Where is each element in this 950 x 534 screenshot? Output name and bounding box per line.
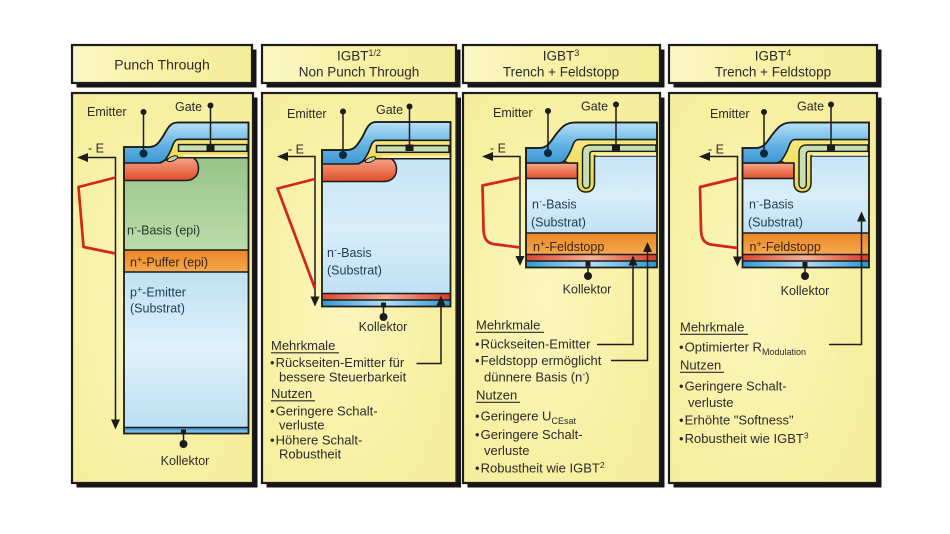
svg-text:Emitter: Emitter [87, 105, 127, 119]
svg-text:n--Basis: n--Basis [749, 197, 794, 212]
svg-text:Kollektor: Kollektor [781, 284, 830, 298]
svg-text:Non Punch Through: Non Punch Through [299, 65, 420, 80]
svg-text:- E: - E [88, 142, 104, 156]
svg-text:• Geringere Schalt-: • Geringere Schalt- [270, 404, 378, 419]
svg-text:Punch Through: Punch Through [114, 57, 209, 73]
svg-text:bessere Steuerbarkeit: bessere Steuerbarkeit [279, 370, 407, 385]
svg-text:(Substrat): (Substrat) [531, 216, 586, 230]
svg-text:verluste: verluste [688, 395, 734, 410]
svg-text:Gate: Gate [175, 100, 202, 114]
svg-text:Mehrkmale: Mehrkmale [476, 318, 540, 333]
svg-text:Nutzen: Nutzen [271, 386, 312, 401]
svg-text:(Substrat): (Substrat) [748, 216, 803, 230]
svg-text:IGBT4: IGBT4 [755, 48, 792, 64]
svg-text:• Rückseiten-Emitter für: • Rückseiten-Emitter für [270, 355, 405, 370]
svg-text:Robustheit: Robustheit [279, 447, 342, 462]
svg-text:n--Basis (epi): n--Basis (epi) [127, 223, 200, 238]
svg-text:n+-Puffer (epi): n+-Puffer (epi) [130, 255, 208, 270]
svg-text:(Substrat): (Substrat) [327, 264, 382, 278]
svg-text:Gate: Gate [376, 103, 403, 117]
svg-text:(Substrat): (Substrat) [130, 302, 185, 316]
svg-text:Nutzen: Nutzen [680, 358, 721, 373]
svg-text:• Robustheit wie IGBT2: • Robustheit wie IGBT2 [475, 460, 605, 476]
svg-text:Emitter: Emitter [493, 106, 533, 120]
svg-text:- E: - E [708, 143, 724, 157]
svg-text:Emitter: Emitter [710, 107, 750, 121]
svg-text:Kollektor: Kollektor [359, 320, 408, 334]
svg-text:• Feldstopp ermöglicht: • Feldstopp ermöglicht [475, 353, 602, 368]
svg-text:• Geringere Schalt-: • Geringere Schalt- [475, 427, 583, 442]
svg-text:Kollektor: Kollektor [161, 454, 210, 468]
svg-text:Kollektor: Kollektor [563, 283, 612, 297]
svg-text:Trench + Feldstopp: Trench + Feldstopp [715, 65, 831, 80]
svg-text:Nutzen: Nutzen [476, 388, 517, 403]
svg-text:n--Basis: n--Basis [532, 197, 577, 212]
svg-text:• Geringere Schalt-: • Geringere Schalt- [679, 379, 787, 394]
svg-text:IGBT3: IGBT3 [543, 48, 580, 64]
svg-text:Emitter: Emitter [287, 107, 327, 121]
svg-text:• Robustheit wie IGBT3: • Robustheit wie IGBT3 [679, 431, 809, 447]
svg-text:dünnere Basis (n-): dünnere Basis (n-) [484, 370, 590, 385]
svg-text:verluste: verluste [279, 418, 325, 433]
svg-text:- E: - E [288, 143, 304, 157]
svg-text:Mehrkmale: Mehrkmale [680, 320, 744, 335]
svg-text:• Erhöhte "Softness": • Erhöhte "Softness" [679, 413, 794, 428]
svg-text:Gate: Gate [797, 100, 824, 114]
svg-text:n--Basis: n--Basis [327, 245, 372, 260]
svg-text:Trench + Feldstopp: Trench + Feldstopp [503, 65, 619, 80]
svg-text:Mehrkmale: Mehrkmale [271, 338, 335, 353]
svg-text:• Rückseiten-Emitter: • Rückseiten-Emitter [475, 337, 591, 352]
svg-text:verluste: verluste [484, 443, 530, 458]
svg-text:Gate: Gate [581, 100, 608, 114]
svg-text:• Höhere Schalt-: • Höhere Schalt- [270, 433, 362, 448]
